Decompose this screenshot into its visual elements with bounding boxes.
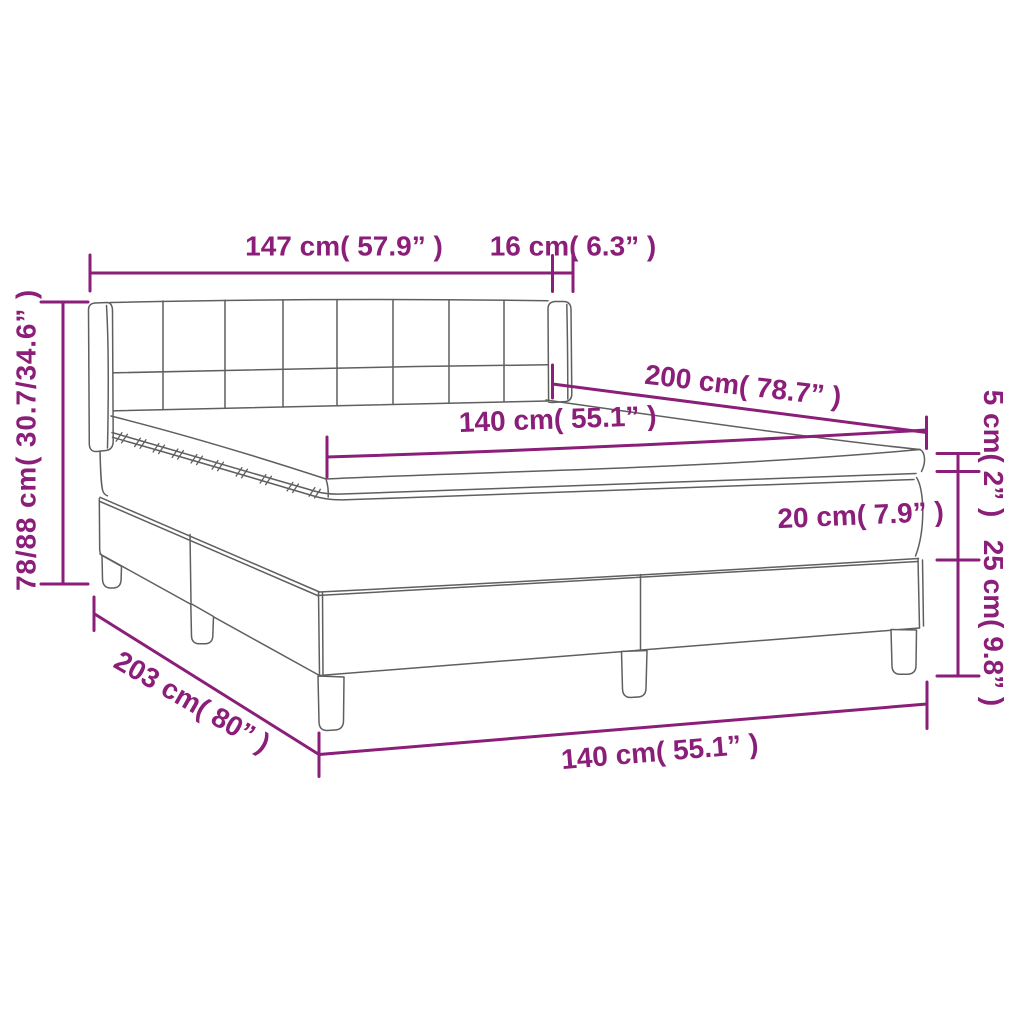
svg-text:78/88 cm( 30.7/34.6” ): 78/88 cm( 30.7/34.6” ) (11, 289, 42, 591)
svg-text:203 cm( 80” ): 203 cm( 80” ) (109, 645, 275, 759)
svg-text:16 cm( 6.3” ): 16 cm( 6.3” ) (490, 231, 657, 262)
svg-text:20 cm( 7.9” ): 20 cm( 7.9” ) (777, 496, 945, 534)
svg-text:140 cm( 55.1” ): 140 cm( 55.1” ) (560, 728, 760, 775)
svg-text:25 cm( 9.8” ): 25 cm( 9.8” ) (978, 540, 1009, 707)
svg-text:140 cm( 55.1” ): 140 cm( 55.1” ) (458, 400, 657, 438)
svg-text:200 cm( 78.7” ): 200 cm( 78.7” ) (643, 359, 843, 413)
svg-text:147 cm( 57.9” ): 147 cm( 57.9” ) (245, 231, 443, 262)
svg-text:5 cm( 2” ): 5 cm( 2” ) (978, 390, 1009, 518)
